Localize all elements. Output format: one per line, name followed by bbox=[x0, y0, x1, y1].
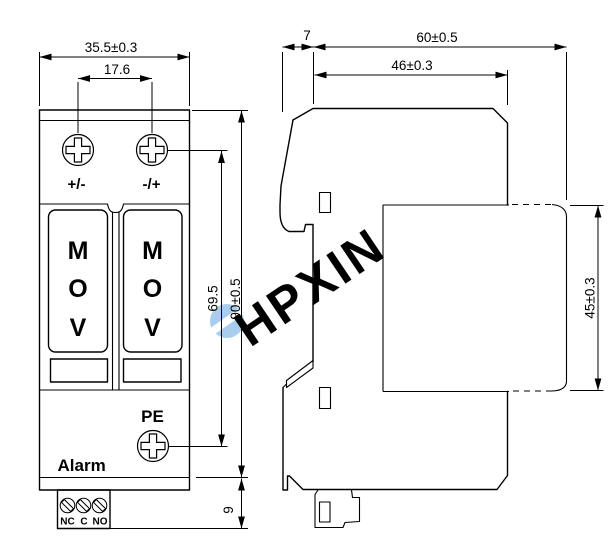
status-indicator-left bbox=[51, 359, 108, 382]
dim-width-label: 35.5±0.3 bbox=[85, 40, 137, 55]
status-indicator-right bbox=[124, 359, 182, 382]
mov-letter: M bbox=[142, 237, 163, 265]
phillips-screw-icon bbox=[63, 135, 94, 166]
terminal-block: NC C NO bbox=[58, 490, 111, 529]
slotted-screw-icon bbox=[92, 498, 107, 513]
phillips-screw-icon bbox=[138, 431, 169, 462]
surge-protector-dimension-drawing: HPXIN M O V M O V +/- -/+ PE bbox=[0, 0, 612, 544]
side-slot-upper bbox=[320, 193, 331, 213]
dim-front-lip-label: 7 bbox=[303, 28, 311, 43]
contact-no-label: NO bbox=[93, 517, 108, 528]
technical-drawing-page: HPXIN M O V M O V +/- -/+ PE bbox=[0, 0, 612, 544]
rail-plate-back-edge bbox=[552, 205, 567, 392]
front-view: M O V M O V +/- -/+ PE Alarm bbox=[40, 110, 190, 529]
side-view bbox=[280, 109, 567, 528]
slotted-screw-icon bbox=[76, 498, 91, 513]
side-upper-profile bbox=[293, 109, 508, 206]
dim-screw-to-pe-label: 69.5 bbox=[206, 285, 221, 311]
mov-letter: O bbox=[143, 275, 162, 303]
module-bay-divider bbox=[113, 212, 120, 390]
dim-terminal-block-label: 9 bbox=[221, 506, 236, 514]
pe-label: PE bbox=[141, 407, 164, 426]
side-lower-profile bbox=[283, 388, 508, 491]
extension-line bbox=[283, 52, 567, 200]
dim-height-label: 90±0.5 bbox=[228, 278, 243, 319]
rail-plate-inner-edge bbox=[383, 205, 509, 392]
contact-nc-label: NC bbox=[60, 517, 74, 528]
slotted-screw-icon bbox=[60, 498, 75, 513]
terminal-polarity-right-label: -/+ bbox=[143, 176, 161, 193]
side-slot-lower bbox=[320, 388, 331, 409]
mov-letter: V bbox=[70, 314, 87, 342]
terminal-polarity-left-label: +/- bbox=[68, 176, 86, 193]
alarm-label: Alarm bbox=[58, 456, 106, 475]
watermark-text: HPXIN bbox=[225, 217, 395, 357]
dim-total-depth-label: 60±0.5 bbox=[416, 30, 457, 45]
side-front-hook bbox=[283, 361, 313, 388]
din-clip-slot bbox=[320, 502, 331, 522]
dim-screw-spacing-label: 17.6 bbox=[104, 62, 130, 77]
dim-upper-depth-label: 46±0.3 bbox=[391, 58, 432, 73]
module-bay-top-line bbox=[40, 204, 190, 213]
phillips-screw-icon bbox=[137, 135, 168, 166]
mov-letter: O bbox=[68, 275, 87, 303]
mov-letter: M bbox=[68, 237, 89, 265]
mov-letter: V bbox=[144, 314, 161, 342]
device-body-outline bbox=[40, 110, 190, 490]
contact-c-label: C bbox=[80, 517, 87, 528]
dim-mount-height-label: 45±0.3 bbox=[583, 277, 598, 318]
